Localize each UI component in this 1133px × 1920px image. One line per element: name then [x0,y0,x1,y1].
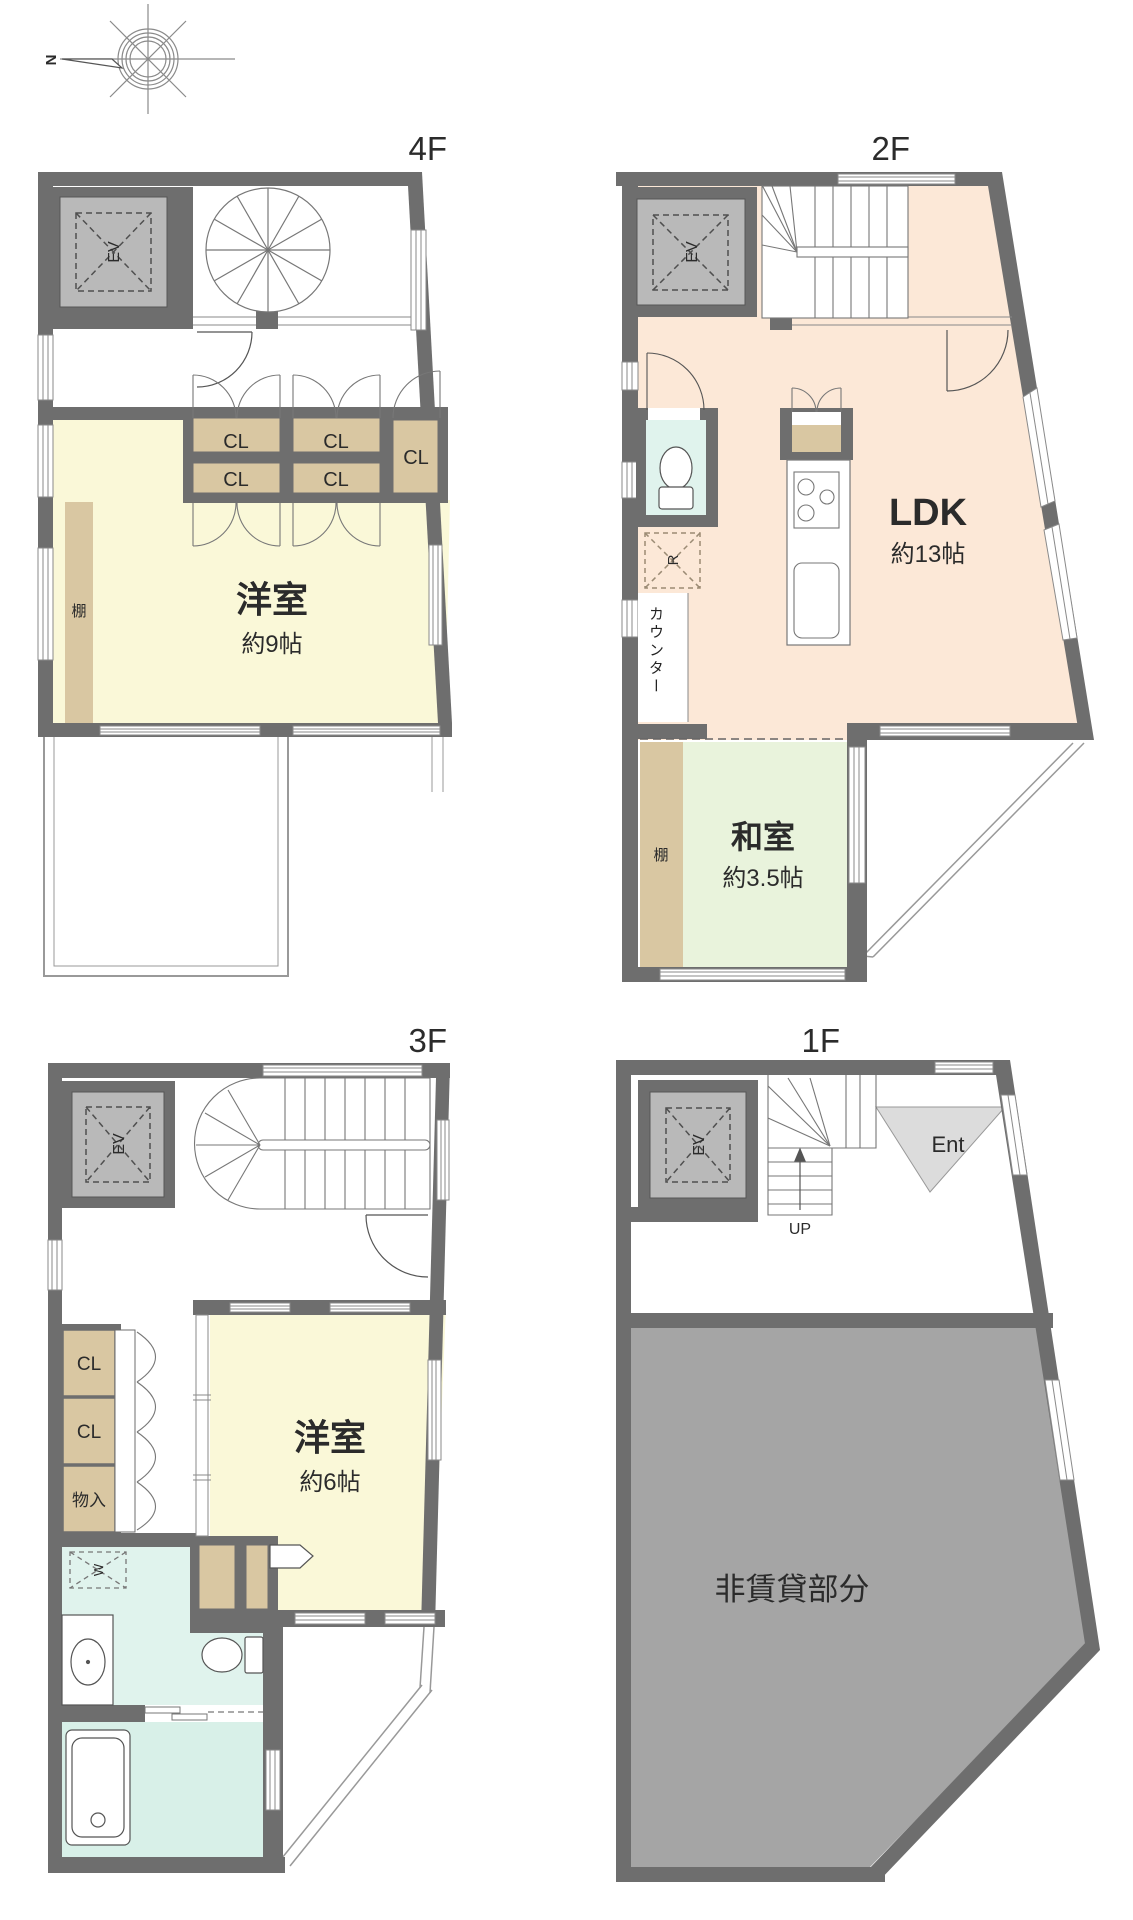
stair-3f [195,1078,431,1209]
counter-label: カウンター [648,606,663,696]
elevator-2f: EV [637,199,745,305]
cl-label: CL [223,469,249,491]
elevator-4f: EV [60,197,167,307]
stair-1f [768,1075,876,1215]
washer-label: W [91,1563,106,1576]
storage-label: 物入 [72,1491,106,1510]
partition-3f [193,1315,211,1536]
ldk-size: 約13帖 [891,541,966,568]
kitchen-island [780,388,853,645]
floorplan-drawing: N 4F [0,0,1133,1920]
balcony-3f [282,1627,434,1866]
floor-4f-label: 4F [408,130,447,167]
compass-rose [60,4,235,114]
floor-3f: 3F [48,1022,450,1873]
room-name-4f: 洋室 [236,579,308,620]
floor-2f: 2F [616,130,1094,982]
north-label: N [43,55,60,66]
up-label: UP [789,1221,811,1238]
door-arc-stair-3f [366,1215,428,1277]
ev-label-1f: EV [691,1134,708,1156]
floor-1f-label: 1F [801,1022,840,1059]
door-arc-hall-4f [197,332,252,387]
corridor-rail-4f [193,317,420,325]
sink-icon [794,563,839,638]
sink-vanity [62,1615,113,1705]
ev-label-3f: EV [111,1133,128,1155]
shelf-label-2f: 棚 [653,847,668,864]
balcony-4f [44,737,443,976]
non-rental-label: 非賃貸部分 [715,1572,870,1607]
sliding-door-bath [145,1707,207,1720]
elevator-1f: EV [650,1092,746,1198]
stair-2f [762,185,908,318]
fridge-label: R [665,554,682,565]
room-size-4f: 約9帖 [241,631,302,658]
balcony-2f [863,743,1084,957]
washitsu-size: 約3.5帖 [722,865,803,892]
floor-1f: 1F [616,1022,1100,1882]
room-name-3f: 洋室 [294,1417,366,1458]
room-size-3f: 約6帖 [299,1469,360,1496]
entrance-label: Ent [931,1132,964,1157]
ldk-name: LDK [889,492,968,534]
ev-label-4f: EV [106,241,123,263]
cl-label: CL [323,431,349,453]
cl-label: CL [403,447,429,469]
floorplan-canvas: N 4F [0,0,1133,1920]
elevator-3f: EV [61,1081,175,1208]
north-arrow [62,59,122,68]
bifold-doors-3f [137,1332,156,1530]
floor-3f-label: 3F [408,1022,447,1059]
cl-label: CL [323,469,349,491]
toilet-icon-3f [202,1637,263,1673]
cl-label: CL [77,1422,101,1443]
toilet-icon [660,447,692,489]
floor-2f-label: 2F [871,130,910,167]
cl-label: CL [223,431,249,453]
up-arrow-icon [795,1149,805,1210]
cl-label: CL [77,1354,101,1375]
shelf-label-4f: 棚 [71,603,86,620]
floor-4f: 4F [38,130,452,976]
wall-post-4f [256,311,278,329]
washitsu-name: 和室 [731,819,795,855]
spiral-stair-icon [206,188,330,312]
ev-label-2f: EV [684,241,701,263]
bathtub-icon [66,1730,130,1845]
